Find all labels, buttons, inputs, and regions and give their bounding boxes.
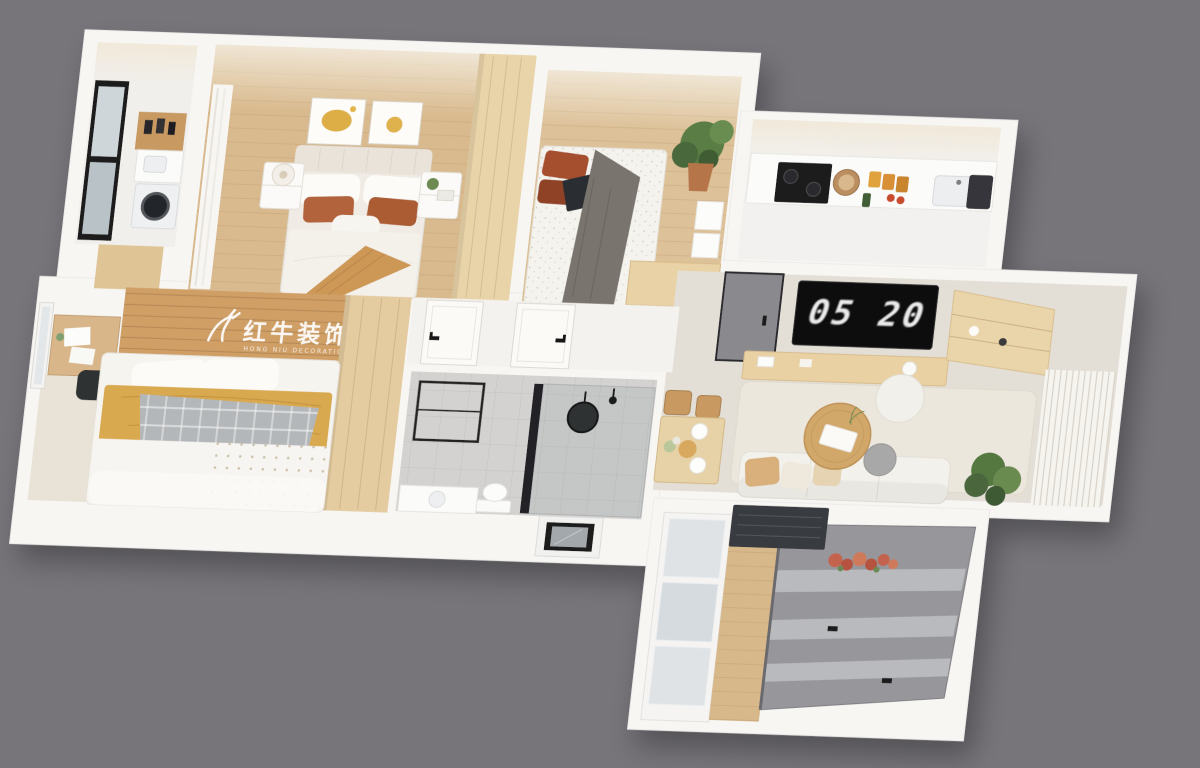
gray-sliding-windows bbox=[760, 520, 975, 716]
pillow bbox=[201, 359, 280, 391]
white-door-1 bbox=[420, 300, 483, 366]
room-living-dining: 05 20 bbox=[652, 271, 1127, 510]
tv-clock-digits: 05 20 bbox=[801, 293, 932, 336]
white-door-2 bbox=[510, 303, 575, 369]
dining-table bbox=[654, 416, 725, 484]
ac-unit bbox=[729, 505, 830, 550]
laundry-far-wall bbox=[93, 42, 197, 85]
gas-stove bbox=[774, 162, 833, 204]
nightstand-lamp bbox=[259, 162, 304, 209]
floorplan-render: 05 20 bbox=[0, 0, 1200, 768]
room-bathroom bbox=[396, 371, 658, 519]
wood-door bbox=[94, 244, 164, 290]
nightstand-plant bbox=[417, 172, 462, 219]
bed-3 bbox=[85, 353, 340, 513]
skylight-window bbox=[535, 516, 604, 558]
dark-tray bbox=[966, 175, 994, 210]
washing-machine bbox=[131, 184, 180, 229]
room-kitchen bbox=[737, 119, 1001, 267]
papers bbox=[69, 347, 96, 365]
room-bedroom-3: 红牛装饰 HONG NIU DECORATION bbox=[17, 284, 412, 514]
vanity bbox=[398, 485, 479, 514]
room-master-bedroom bbox=[188, 44, 537, 302]
room-south-balcony bbox=[641, 502, 978, 730]
sofa-pillow bbox=[778, 461, 813, 490]
watermark-brand: 红牛装饰 bbox=[242, 319, 353, 350]
papers bbox=[64, 327, 90, 347]
floorplan-svg: 05 20 bbox=[0, 0, 1200, 768]
sink-counter bbox=[134, 150, 184, 183]
entry-door bbox=[716, 272, 784, 362]
headboard bbox=[294, 145, 433, 176]
room-hallway bbox=[406, 297, 679, 372]
wall-tv-clock: 05 20 bbox=[792, 281, 939, 350]
sofa-pillow-tan bbox=[745, 456, 780, 487]
